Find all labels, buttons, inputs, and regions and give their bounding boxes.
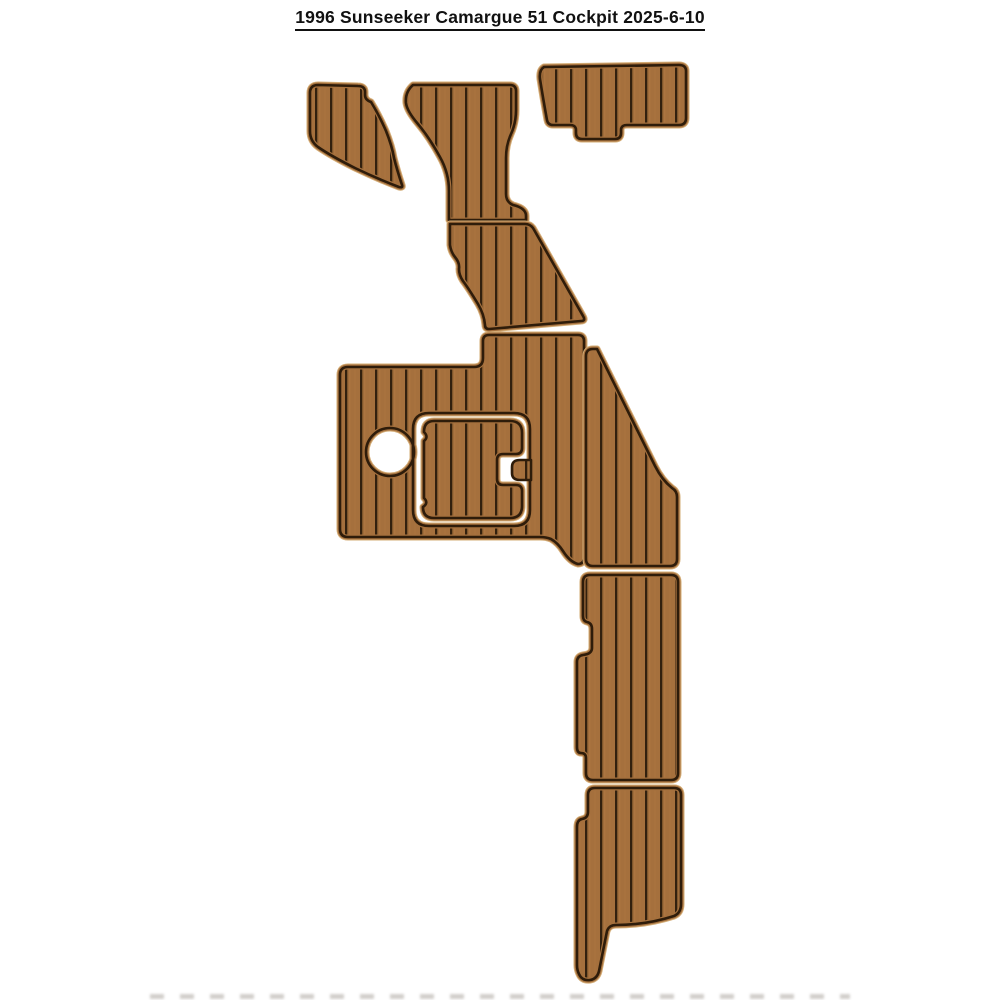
pad-mid-right-taper [586,349,677,566]
pad-lower-column-lower [577,788,681,980]
hatch-inner-pad [423,421,522,518]
pad-upper-column-top [406,85,526,220]
product-image [0,0,1000,1000]
hatch-latch-tab [512,460,531,480]
bottom-crop-artifact [150,994,850,999]
pad-lower-column-upper [577,575,678,780]
pad-top-right [540,65,686,139]
pad-upper-column-bottom [450,224,584,329]
pad-top-left-wing [310,85,402,187]
